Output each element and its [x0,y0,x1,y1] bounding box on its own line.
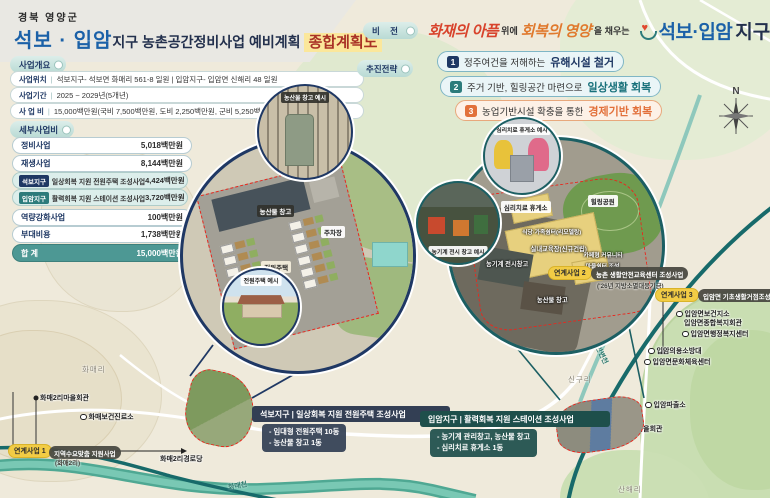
linked2-title: 농촌 생활안전교육센터 조성사업 [591,267,688,280]
linked1-subnote: (화매2리) [55,458,80,467]
ibam-site-dashed-boundary [465,173,654,333]
ibam-label-dining: 식당·가족쉼터(리모델링) [522,227,581,236]
ibam-rest-example-photo: 심리치료 휴게소 예시 [483,117,561,195]
ibam-chip-rest: 심리치료 휴게소 [501,201,551,213]
house-roof-shape [237,295,284,304]
strategy-item-1: 1 정주여건을 저해하는 유해시설 철거 [437,51,624,72]
seokbo-box-body: - 임대형 전원주택 10동 - 농산물 창고 1동 [262,424,346,452]
budget-row-seokbo: 석보지구일상회복 지원 전원주택 조성사업 4,424백만원 [12,172,188,189]
linked2-subnote: ('26년 지방소멸대응기금) [597,281,664,290]
ibam-inset-top-label: 심리치료 휴게소 예시 [493,124,550,135]
page-title: 석보 · 입암지구 농촌공간정비사업 예비계획종합계획도 [14,24,382,53]
seokbo-parking-lot [309,175,340,203]
title-district-names: 석보 · 입암 [14,30,112,52]
area-label-sanhaeri: 산해리 [618,484,642,495]
strategy-item-2: 2 주거 기반, 힐링공간 마련으로 일상생활 회복 [440,76,661,97]
heart-in-hands-icon: ♥ [639,23,655,39]
linked3-place-4: 입암의용소방대 [648,346,702,356]
seokbo-house-example-photo: 전원주택 예시 [222,268,300,346]
seokbo-box-item-2: - 농산물 창고 1동 [269,438,339,449]
budget-row-regeneration: 재생사업8,144백만원 [12,155,192,172]
budget-row-total: 합 계15,000백만원 [12,244,192,262]
compass-rose: N [716,86,756,138]
map-point-icon [644,359,651,366]
map-point-icon [645,402,652,409]
tab-budget: 세부사업비 [10,121,74,138]
tab-strategy: 추진전략 [357,60,413,77]
ibam-chip-park: 힐링공원 [588,195,618,207]
budget-row-ibam: 입암지구활력회복 지원 스테이션 조성사업 3,720백만원 [12,189,188,206]
linked2-badge: 연계사업 2 [548,266,592,280]
ibam-inset-left-label: 농기계 전시 창고 예시 [429,246,488,257]
label-hwamae-hall: 화매2리마을회관 [40,393,89,403]
compass-north-label: N [716,86,756,97]
ibam-label-cafe-line1: 카페형 커뮤니티 [584,250,623,259]
map-point-icon [682,331,689,338]
linked1-badge: 연계사업 1 [8,444,52,458]
linked3-place-5: 입암면문화체육센터 [644,357,710,367]
map-point-icon [676,311,683,318]
machine-gray-shape [510,155,534,182]
ibam-box-body: - 농기계 관리창고, 농산물 창고 - 심리치료 휴게소 1동 [430,429,537,457]
vision-statement: 화재의 아픔 위에 회복의 영양 을 채우는 ♥ 석보·입암 지구 [428,17,770,44]
ibam-box-title: 입암지구 | 활력회복 지원 스테이션 조성사업 [420,411,610,427]
ibam-label-education: 실내교육장(신규건립) [531,244,587,253]
budget-row-maintenance: 정비사업5,018백만원 [12,137,192,154]
area-label-hwamaeri: 화매리 [82,364,106,375]
budget-row-capacity: 역량강화사업100백만원 [12,209,192,226]
linked3-title: 입암면 기초생활거점조성사업 [698,289,770,302]
linked3-place-3: 입암면행정복지센터 [682,329,748,339]
tractor-orange-shape [453,220,469,236]
ibam-box-item-2: - 심리치료 휴게소 1동 [437,443,530,454]
region-label: 경북 영양군 [18,9,79,24]
map-point-icon [648,348,655,355]
tab-vision: 비 전 [363,22,418,39]
label-ibam-police: 입암파출소 [645,400,686,410]
ibam-label-warehouse: 농산물 창고 [537,295,568,304]
label-hwamae-clinic: 화매보건진료소 [80,412,134,422]
seokbo-inset-top-label: 농산물 창고 예시 [281,92,329,103]
seokbo-chip-parking: 주차장 [321,226,345,238]
seokbo-box-item-1: - 임대형 전원주택 10동 [269,427,339,438]
ibam-machine-example-photo: 농기계 전시 창고 예시 [416,181,500,265]
plan-map-poster: 농산물 창고 주차장 전원주택 농산물 창고 예시 전원주택 예시 심리치료 휴… [0,0,770,498]
area-label-singuri: 신구리 [568,374,592,385]
seokbo-housing-col-b [288,214,339,289]
house-wall-shape [242,304,282,318]
title-project-name: 지구 농촌공간정비사업 예비계획 [112,34,300,50]
seokbo-inset-bottom-label: 전원주택 예시 [241,275,282,286]
strategy-item-3: 3 농업기반시설 확충을 통한 경제기반 회복 [455,100,662,121]
linked3-badge: 연계사업 3 [655,288,699,302]
ibam-box-item-1: - 농기계 관리창고, 농산물 창고 [437,432,530,443]
tractor-red-shape [428,217,446,235]
seokbo-warehouse-example-photo: 농산물 창고 예시 [257,84,353,180]
budget-row-incidental: 부대비용1,738백만원 [12,226,192,243]
linked3-place-2: 입암면종합복지회관 [684,318,742,328]
seokbo-teal-building [372,242,409,267]
map-point-icon [80,414,87,421]
linked1-target-label: 화매2리경로당 [160,454,203,464]
ibam-label-machine: 농기계 전시창고 [486,259,528,268]
compass-star-icon [719,97,753,135]
tractor-green-shape [474,215,488,234]
warehouse-tank-shape [285,114,315,167]
seokbo-chip-warehouse: 농산물 창고 [257,205,295,217]
